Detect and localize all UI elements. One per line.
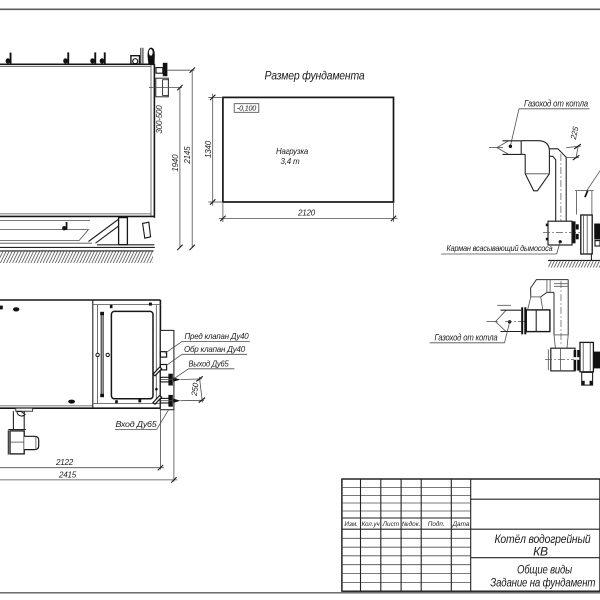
- svg-text:1340: 1340: [204, 140, 213, 158]
- svg-text:Подп.: Подп.: [428, 520, 445, 528]
- svg-text:1940: 1940: [171, 154, 180, 172]
- svg-text:Карман всасывающий дымососа: Карман всасывающий дымососа: [447, 244, 554, 253]
- svg-text:2145: 2145: [183, 146, 192, 165]
- svg-text:3,4 т: 3,4 т: [281, 157, 301, 166]
- svg-text:КВ: КВ: [533, 544, 548, 558]
- svg-text:250: 250: [190, 382, 201, 397]
- svg-text:Кол.уч: Кол.уч: [362, 521, 381, 528]
- svg-text:-0,100: -0,100: [237, 103, 256, 112]
- svg-text:2120: 2120: [297, 208, 316, 217]
- svg-text:300-500: 300-500: [155, 105, 164, 134]
- svg-text:Размер фундамента: Размер фундамента: [265, 69, 365, 83]
- svg-text:Задание на фундамент: Задание на фундамент: [490, 575, 595, 589]
- svg-text:Газоход от котла: Газоход от котла: [524, 99, 588, 109]
- svg-text:2122: 2122: [55, 458, 74, 467]
- svg-text:Вход Ду65: Вход Ду65: [116, 420, 158, 429]
- svg-text:Лист: Лист: [382, 521, 400, 528]
- svg-text:Изм.: Изм.: [344, 521, 358, 528]
- svg-text:№док.: №док.: [402, 520, 421, 528]
- svg-text:Пред клапан Ду40: Пред клапан Ду40: [185, 332, 250, 341]
- svg-text:Общие виды: Общие виды: [517, 562, 572, 576]
- svg-text:Нагрузка: Нагрузка: [276, 147, 309, 156]
- svg-text:Газоход от котла: Газоход от котла: [435, 332, 498, 342]
- svg-text:Выход Ду65: Выход Ду65: [189, 359, 230, 368]
- svg-text:Дата: Дата: [452, 521, 470, 528]
- svg-text:2415: 2415: [58, 470, 77, 479]
- svg-text:Обр клапан Ду40: Обр клапан Ду40: [184, 345, 246, 354]
